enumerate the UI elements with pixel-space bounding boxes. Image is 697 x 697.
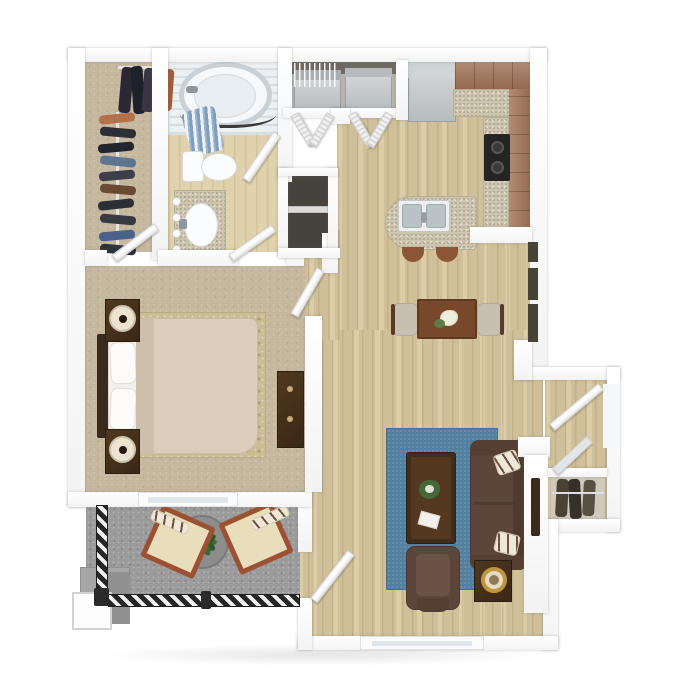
vanity-sink [184, 203, 218, 247]
dining-chair-arm [500, 304, 504, 335]
wall-hall-b [158, 250, 238, 266]
pony-wall-cap [518, 437, 550, 457]
wall-bedroom-east [305, 316, 322, 492]
stove-burner [491, 161, 504, 174]
wall-dining-stub [514, 340, 532, 380]
linen-wall-right [328, 168, 338, 256]
dining-chair [477, 303, 502, 336]
sofa-seam [473, 502, 513, 505]
coat [582, 480, 596, 517]
dryer-lid [345, 68, 392, 77]
sink-basin [426, 204, 446, 228]
vanity-faucet [179, 219, 187, 229]
wall-entry-top [518, 367, 620, 380]
apartment-floor-plan-3d-render [0, 0, 697, 697]
refrigerator-top [408, 62, 456, 78]
armchair-back [417, 598, 449, 612]
linen-wall-top [278, 168, 338, 176]
coffee-table-flowers [425, 485, 434, 493]
wall-laundry-right [396, 60, 408, 120]
bed-pillow [109, 341, 137, 384]
wire-shelf [284, 63, 338, 87]
coat-rod [552, 492, 604, 494]
vanity-light [172, 197, 181, 206]
dining-chair [393, 303, 418, 336]
table-flowers-leaf [434, 319, 445, 328]
vanity-light [172, 213, 181, 222]
tub-faucet [186, 86, 198, 93]
console-slot [531, 478, 540, 536]
wall-living-left-lower [298, 598, 312, 650]
living-window-glass [372, 641, 472, 646]
linen-wall-left [278, 168, 288, 256]
dining-window [528, 304, 538, 342]
counter-top [453, 89, 510, 117]
sink-basin [402, 204, 422, 228]
wall-hall-a [85, 250, 107, 266]
patio-door-threshold [298, 552, 312, 598]
wall-top [68, 48, 547, 62]
dresser-knob [287, 386, 293, 392]
coat [568, 479, 582, 520]
comforter [136, 318, 258, 454]
armchair-seat [416, 554, 450, 596]
lamp-finial [119, 446, 127, 454]
linen-wall-bottom [278, 248, 340, 258]
dining-window [528, 268, 538, 300]
bed-pillow [109, 387, 137, 430]
bedroom-window-glass [148, 497, 228, 503]
vanity-light [172, 229, 181, 238]
coat [555, 479, 569, 518]
toilet-bowl [201, 153, 237, 181]
dining-window [528, 242, 538, 262]
stove-burner [491, 141, 504, 154]
wall-kitchen-dining [470, 227, 532, 243]
lamp-finial [119, 315, 127, 323]
patio-rail-post [201, 591, 211, 609]
dresser [277, 371, 304, 448]
upper-cabinets [455, 62, 532, 89]
sink-faucet [421, 212, 427, 223]
patio-rail-left [96, 505, 108, 591]
patio-rail-post [94, 588, 109, 606]
wall-left [68, 48, 85, 507]
dresser-knob [287, 416, 293, 422]
side-cabinets [509, 89, 532, 230]
tray-center [489, 575, 499, 585]
entry-doorway-light [603, 384, 620, 448]
dining-chair-arm [391, 304, 395, 335]
linen-shelf [288, 206, 328, 213]
